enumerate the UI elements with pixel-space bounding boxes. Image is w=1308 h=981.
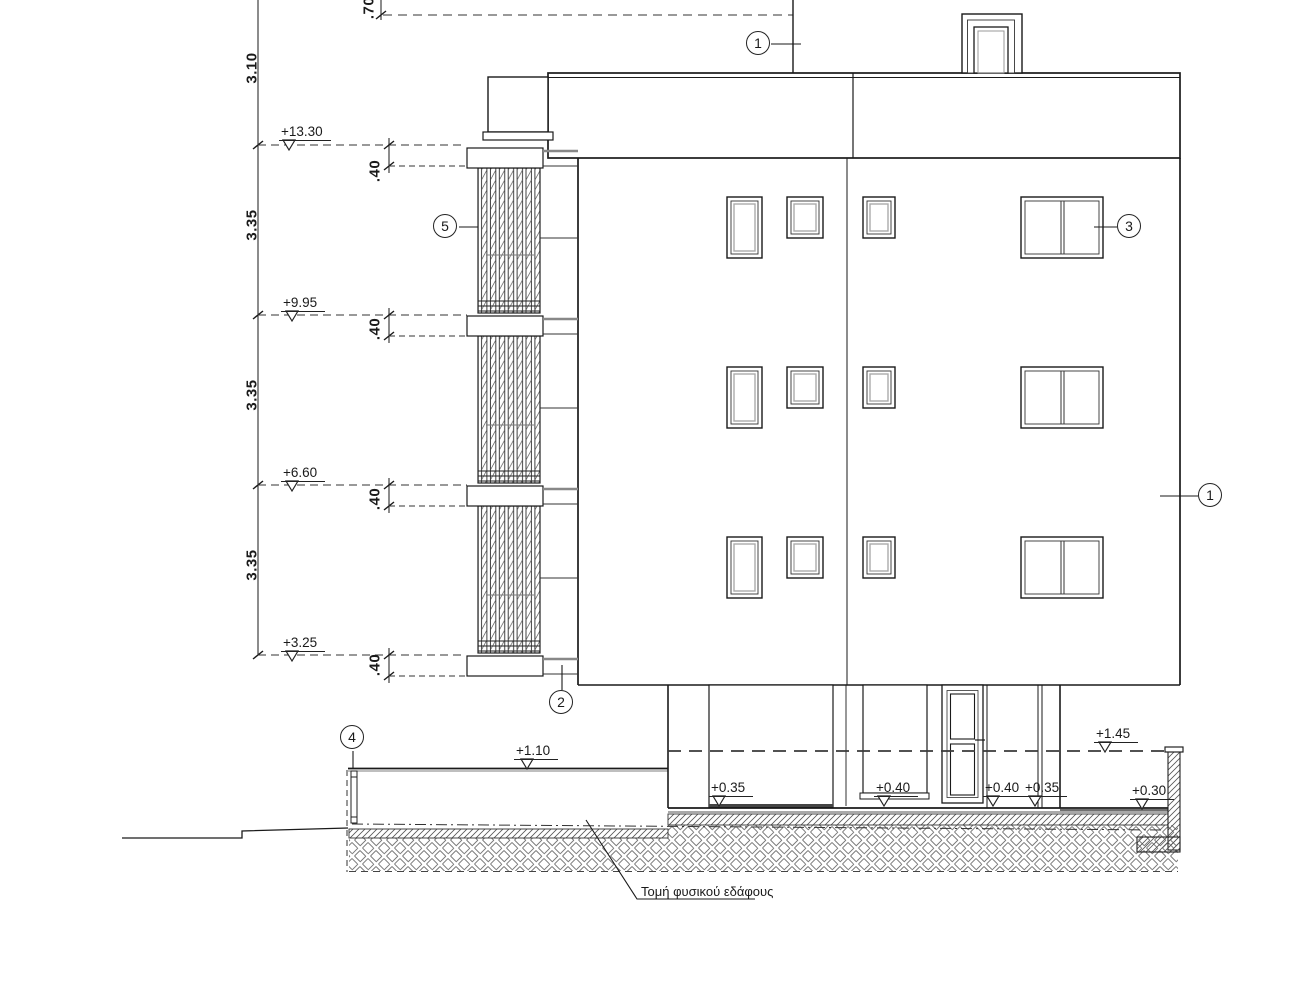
dim-floor-2: 3.35: [244, 379, 261, 410]
natural-ground-note: Τομή φυσικού εδάφους: [641, 884, 773, 899]
level-ground-1: +0.35: [709, 781, 753, 797]
dimension-lines: [253, 0, 467, 683]
level-ground-2: +0.40: [874, 781, 918, 797]
dim-slab-2: .40: [367, 488, 384, 510]
balcony-louver-stack: [467, 148, 578, 676]
callout-fence: 4: [340, 725, 364, 749]
ground-section-hatch: [349, 814, 1178, 872]
dim-slab-3: .40: [367, 318, 384, 340]
dim-floor-3: 3.35: [244, 209, 261, 240]
callout-balcony-slab: 2: [549, 690, 573, 714]
roof-access-door: [962, 14, 1022, 73]
level-floor2: +6.60: [281, 466, 325, 482]
drawing-linework: [0, 0, 1308, 981]
level-ground-4: +0.35: [1023, 781, 1067, 797]
roof-pergola-box: [483, 77, 553, 140]
callout-facade-right: 1: [1198, 483, 1222, 507]
level-yard-left: +1.10: [514, 744, 558, 760]
level-boundary-right: +1.45: [1094, 727, 1138, 743]
level-ground-5: +0.30: [1130, 784, 1174, 800]
callout-louver-screen: 5: [433, 214, 457, 238]
dim-parapet: .70: [361, 0, 378, 19]
dim-top-floor: 3.10: [244, 52, 261, 83]
facade-windows: [727, 197, 1103, 598]
level-floor3: +9.95: [281, 296, 325, 312]
callout-window: 3: [1117, 214, 1141, 238]
level-ground-3: +0.40: [983, 781, 1027, 797]
level-floor1: +3.25: [281, 636, 325, 652]
elevation-section-drawing: .70 3.10 3.35 3.35 3.35 .40 .40 .40 .40 …: [0, 0, 1308, 981]
level-roof-slab: +13.30: [279, 125, 331, 141]
dim-slab-1: .40: [367, 654, 384, 676]
dim-slab-4: .40: [367, 160, 384, 182]
dim-floor-1: 3.35: [244, 549, 261, 580]
callout-roof-wall: 1: [746, 31, 770, 55]
